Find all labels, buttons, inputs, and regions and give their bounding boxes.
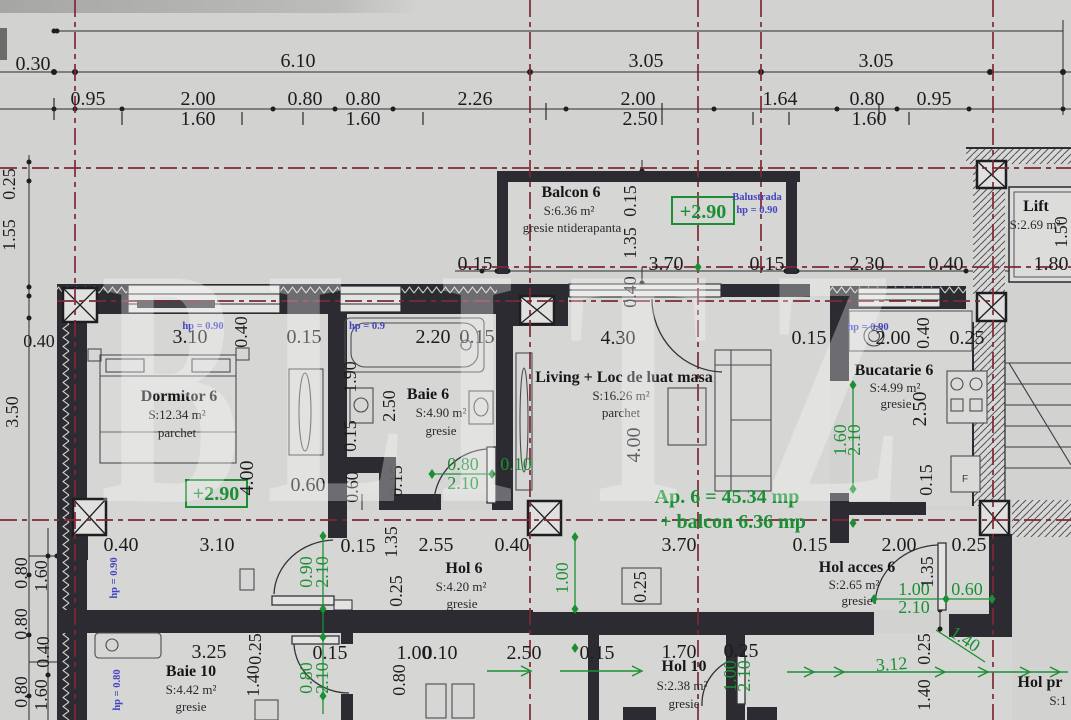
svg-text:1.60: 1.60 <box>31 679 51 711</box>
svg-text:1.64: 1.64 <box>763 88 798 110</box>
svg-text:2.10: 2.10 <box>734 660 754 692</box>
svg-text:S:4.42 m²: S:4.42 m² <box>166 682 217 697</box>
svg-text:2.50: 2.50 <box>507 642 542 664</box>
svg-text:3.05: 3.05 <box>859 50 894 72</box>
svg-text:0.25: 0.25 <box>724 640 759 662</box>
svg-text:0.60: 0.60 <box>951 579 983 599</box>
svg-text:2.10: 2.10 <box>898 597 930 617</box>
svg-text:0.80: 0.80 <box>850 88 885 110</box>
svg-text:0.15: 0.15 <box>916 464 936 496</box>
svg-text:S:2.38 m²: S:2.38 m² <box>657 678 708 693</box>
svg-text:6.10: 6.10 <box>281 50 316 72</box>
svg-text:1.60: 1.60 <box>346 108 381 130</box>
svg-text:F: F <box>962 474 968 485</box>
svg-text:1.55: 1.55 <box>0 219 19 251</box>
svg-text:0.15: 0.15 <box>313 642 348 664</box>
svg-text:0.10: 0.10 <box>423 642 458 664</box>
svg-text:Lift: Lift <box>1023 198 1049 215</box>
svg-text:1.35: 1.35 <box>917 556 937 588</box>
svg-text:0.25: 0.25 <box>0 168 19 200</box>
svg-text:3.12: 3.12 <box>875 653 908 675</box>
svg-text:S:1: S:1 <box>1049 693 1066 708</box>
svg-text:S:4.20 m²: S:4.20 m² <box>436 579 487 594</box>
svg-text:0.95: 0.95 <box>917 88 952 110</box>
svg-text:gresie: gresie <box>841 593 872 608</box>
svg-text:gresie: gresie <box>175 699 206 714</box>
svg-text:0.40: 0.40 <box>913 317 933 349</box>
svg-text:L: L <box>266 199 407 575</box>
svg-text:gresie: gresie <box>668 696 699 711</box>
svg-text:0.80: 0.80 <box>389 664 409 696</box>
svg-text:0.80: 0.80 <box>288 88 323 110</box>
svg-text:Baie 10: Baie 10 <box>166 663 216 680</box>
svg-text:0.15: 0.15 <box>580 642 615 664</box>
svg-text:0.80: 0.80 <box>11 557 31 589</box>
svg-text:3.25: 3.25 <box>192 641 227 663</box>
svg-text:gresie: gresie <box>446 596 477 611</box>
svg-text:1.60: 1.60 <box>31 560 51 592</box>
svg-text:0.25: 0.25 <box>950 327 985 349</box>
svg-text:S:2.65 m²: S:2.65 m² <box>829 577 880 592</box>
svg-text:0.40: 0.40 <box>929 253 964 275</box>
svg-text:1.40: 1.40 <box>914 679 934 711</box>
svg-text:0.80: 0.80 <box>346 88 381 110</box>
svg-text:0.25: 0.25 <box>386 575 406 607</box>
svg-text:2.50: 2.50 <box>909 392 931 427</box>
svg-text:2.26: 2.26 <box>458 88 493 110</box>
svg-text:3.05: 3.05 <box>629 50 664 72</box>
svg-text:0.95: 0.95 <box>71 88 106 110</box>
svg-text:0.25: 0.25 <box>630 571 650 603</box>
svg-text:Z: Z <box>763 199 904 575</box>
svg-text:2.50: 2.50 <box>623 108 658 130</box>
svg-text:Hol 10: Hol 10 <box>662 658 707 675</box>
svg-text:1.50: 1.50 <box>1051 216 1071 248</box>
svg-text:2.00: 2.00 <box>181 88 216 110</box>
svg-text:I: I <box>436 199 518 575</box>
svg-text:B: B <box>100 199 241 575</box>
svg-text:0.25: 0.25 <box>952 534 987 556</box>
svg-text:1.40: 1.40 <box>243 665 263 697</box>
svg-text:0.80: 0.80 <box>11 676 31 708</box>
svg-text:2.10: 2.10 <box>312 662 332 694</box>
svg-text:1.60: 1.60 <box>852 108 887 130</box>
svg-text:0.40: 0.40 <box>23 331 55 351</box>
svg-text:0.25: 0.25 <box>914 633 934 665</box>
svg-text:2.00: 2.00 <box>621 88 656 110</box>
svg-text:1.60: 1.60 <box>181 108 216 130</box>
svg-text:0.80: 0.80 <box>11 608 31 640</box>
svg-text:T: T <box>568 199 709 575</box>
svg-text:0.30: 0.30 <box>16 53 51 75</box>
svg-text:3.50: 3.50 <box>2 396 22 428</box>
svg-text:1.80: 1.80 <box>1034 253 1069 275</box>
svg-text:Hol pr: Hol pr <box>1018 674 1063 691</box>
svg-text:0.25: 0.25 <box>245 633 265 665</box>
svg-text:hp = 0.80: hp = 0.80 <box>112 669 123 710</box>
svg-text:0.40: 0.40 <box>33 636 53 668</box>
